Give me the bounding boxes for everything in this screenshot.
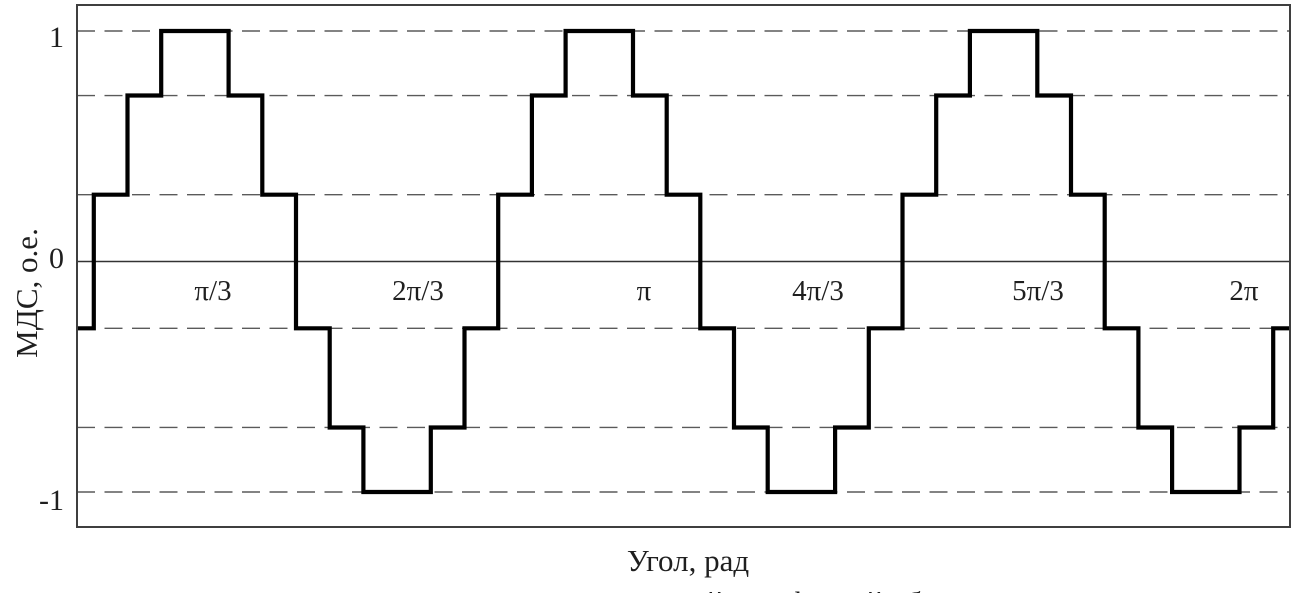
x-tick-label: 4π/3 bbox=[748, 274, 888, 308]
x-tick-label: 5π/3 bbox=[968, 274, 1108, 308]
plot-border bbox=[77, 5, 1290, 527]
y-tick-label: 0 bbox=[2, 242, 64, 276]
y-tick-label: 1 bbox=[2, 21, 64, 55]
y-tick-label: -1 bbox=[2, 484, 64, 518]
figure-canvas: МДС, о.е. 10-1 π/32π/3π4π/35π/32π Угол, … bbox=[0, 0, 1294, 593]
figure-caption: Рис. 6. МДС симметричной трехфазной обмо… bbox=[66, 584, 1294, 593]
x-tick-label: 2π/3 bbox=[348, 274, 488, 308]
x-tick-label: π bbox=[574, 274, 714, 308]
x-axis-title: Угол, рад bbox=[528, 543, 848, 579]
x-tick-label: 2π bbox=[1174, 274, 1294, 308]
y-axis-title: МДС, о.е. bbox=[8, 183, 46, 403]
x-tick-label: π/3 bbox=[143, 274, 283, 308]
